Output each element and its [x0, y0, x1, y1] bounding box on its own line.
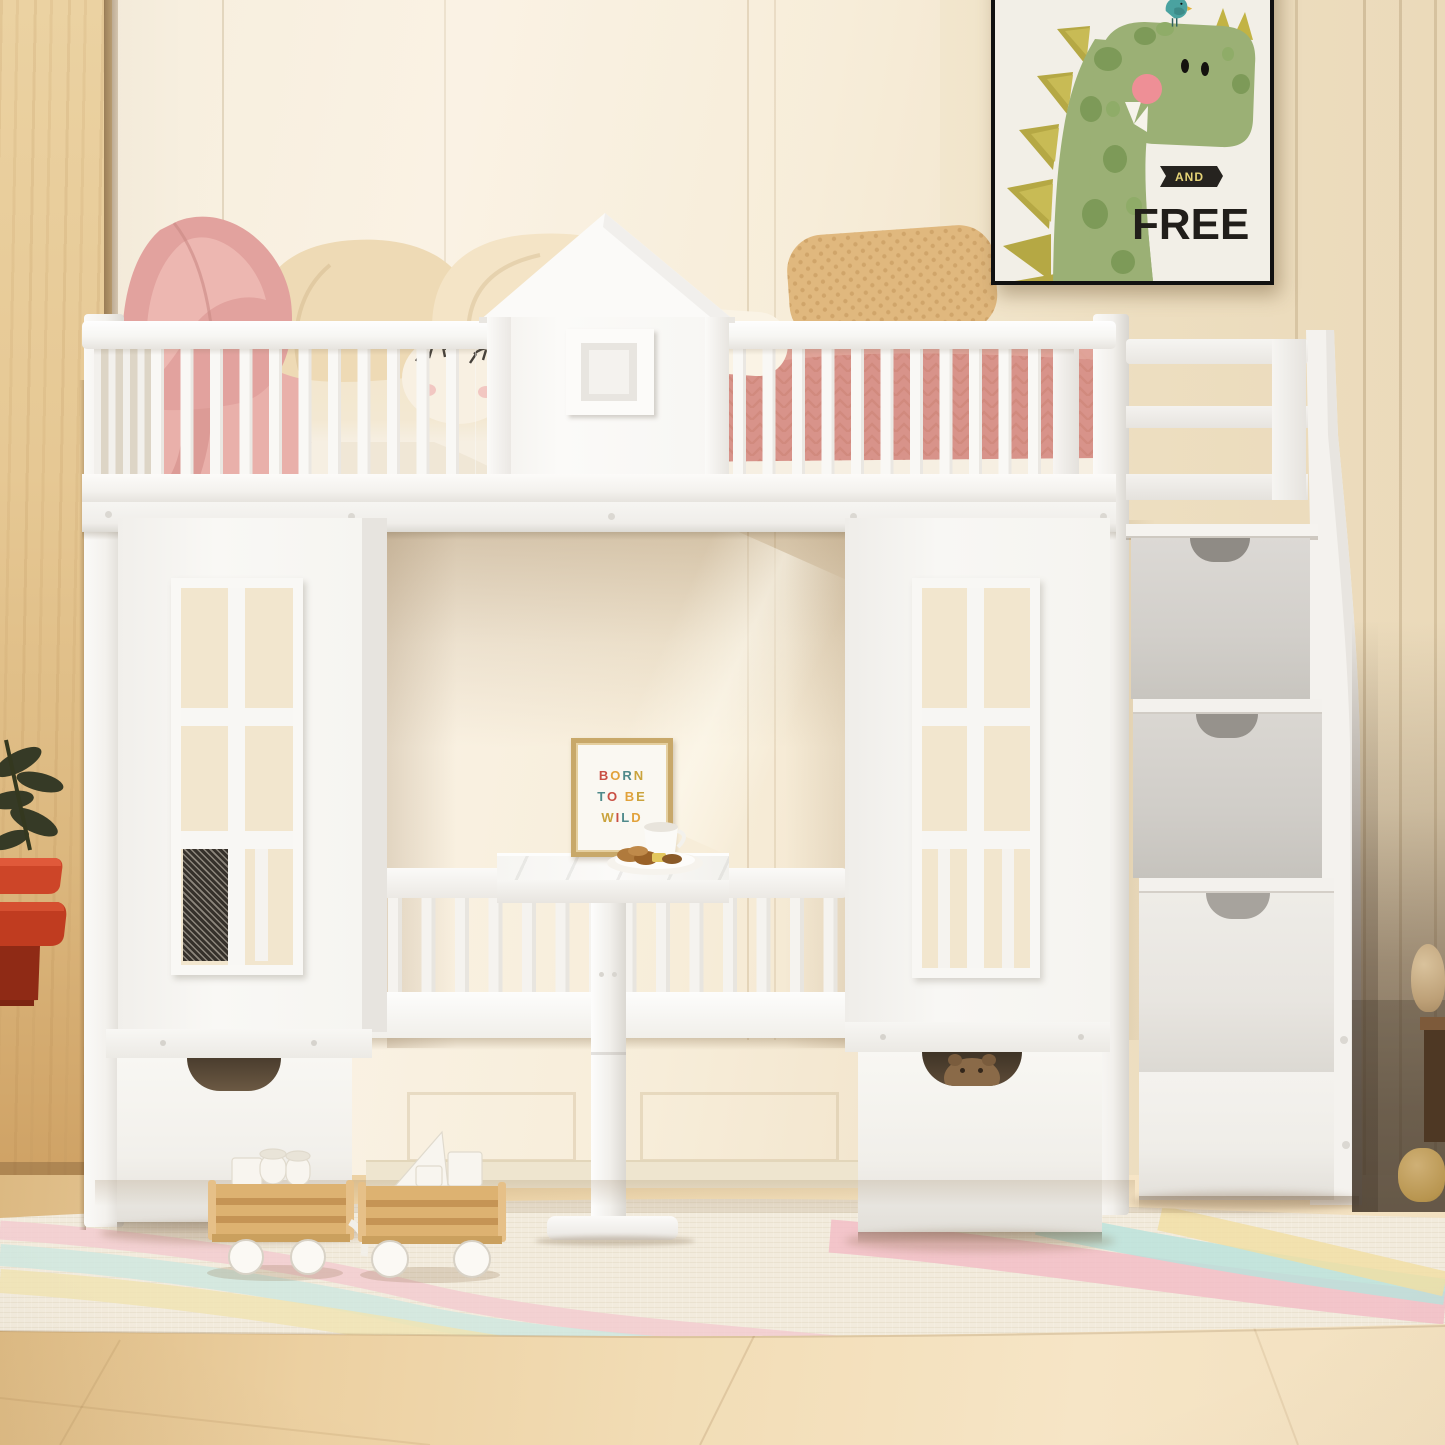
svg-text:FREE: FREE [1132, 200, 1249, 249]
svg-text:AND: AND [1175, 170, 1204, 184]
